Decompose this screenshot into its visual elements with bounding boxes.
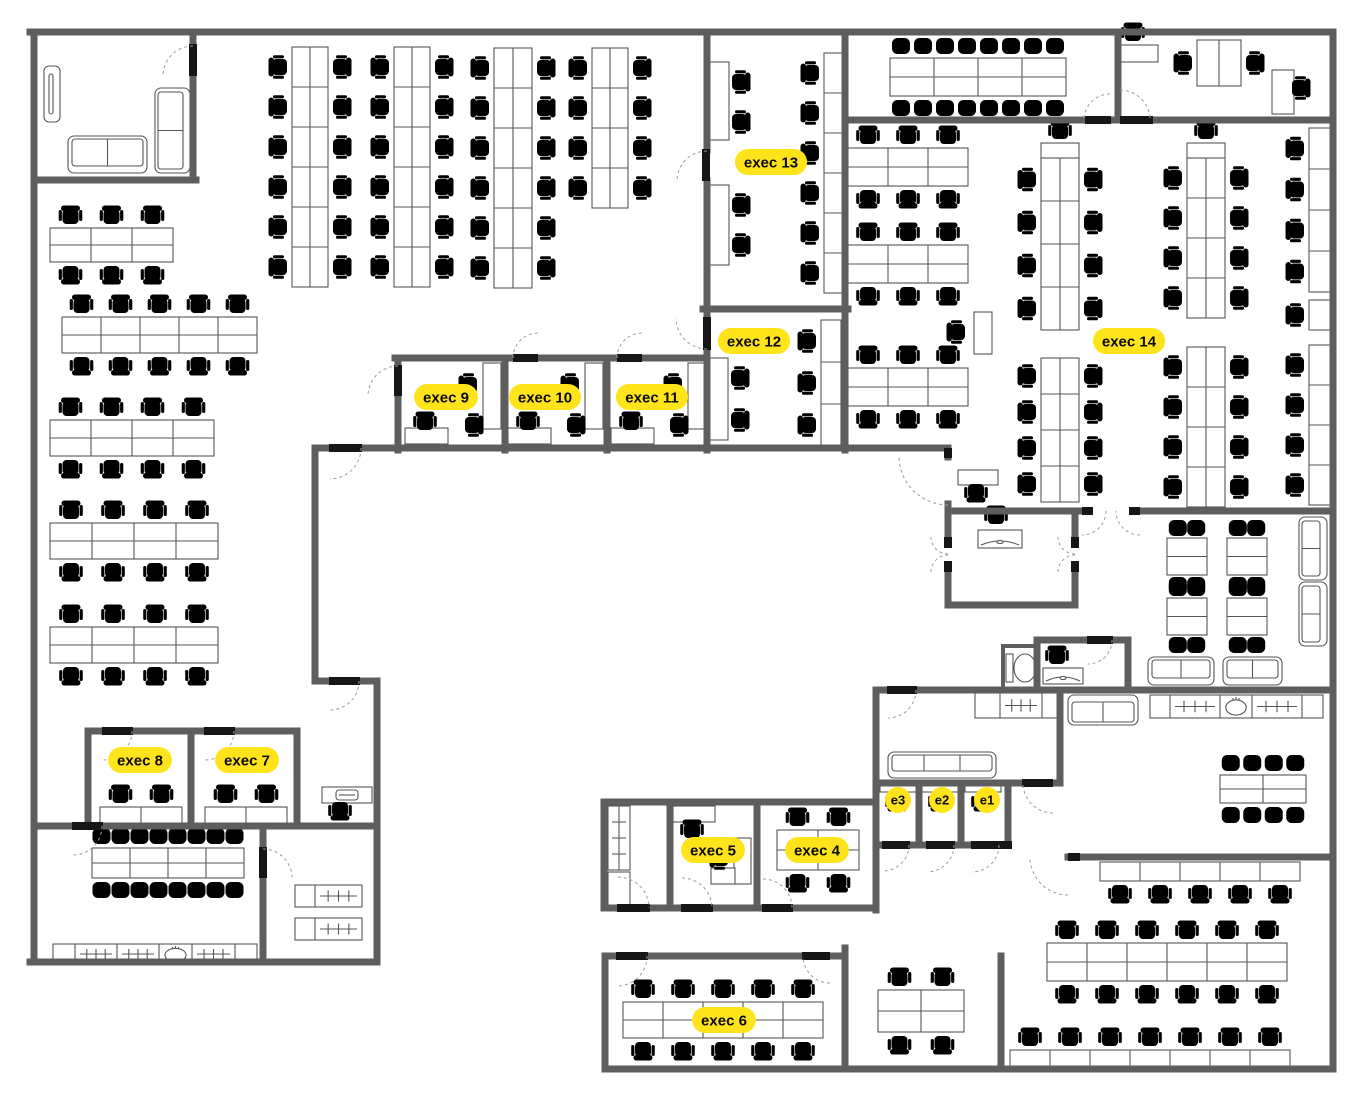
office-chair <box>59 605 83 624</box>
office-chair <box>1175 985 1199 1004</box>
office-chair <box>936 287 960 306</box>
door-swing-arc <box>1023 783 1053 813</box>
door-swing-arc <box>888 690 916 718</box>
door-jamb <box>513 354 538 362</box>
door-swing-arc <box>263 849 292 878</box>
office-chair <box>1230 355 1249 379</box>
wall-layer <box>30 32 1333 1069</box>
office-chair <box>1286 303 1305 327</box>
office-chair <box>936 190 960 209</box>
office-chair <box>1218 1028 1242 1047</box>
office-chair <box>1188 885 1212 904</box>
room-label-exec-12[interactable]: exec 12 <box>718 328 790 354</box>
office-chair <box>537 256 556 280</box>
office-chair <box>936 346 960 365</box>
office-chair <box>143 563 167 582</box>
office-chair <box>1055 921 1079 940</box>
office-chair <box>100 206 124 225</box>
room-label-exec-10[interactable]: exec 10 <box>509 384 581 410</box>
office-chair <box>371 255 390 279</box>
office-chair <box>59 266 83 285</box>
office-chair <box>1108 885 1132 904</box>
office-chair <box>827 808 851 827</box>
office-chair <box>1135 921 1159 940</box>
stool-chair <box>1229 637 1247 653</box>
office-chair <box>413 412 437 431</box>
office-chair <box>141 398 165 417</box>
office-chair <box>516 412 540 431</box>
office-chair <box>1230 435 1249 459</box>
office-chair <box>537 176 556 200</box>
door-swing-arc <box>330 681 359 710</box>
office-chair <box>148 357 172 376</box>
office-chair <box>1084 364 1103 388</box>
office-chair <box>101 667 125 686</box>
door-jamb <box>189 44 197 76</box>
room-label-exec-4[interactable]: exec 4 <box>785 837 849 863</box>
office-chair <box>732 233 751 257</box>
door-jamb <box>703 317 711 350</box>
door-jamb <box>617 904 650 912</box>
office-chair <box>633 136 652 160</box>
office-chair <box>896 287 920 306</box>
office-chair <box>333 95 352 119</box>
office-chair <box>931 968 955 987</box>
office-chair <box>101 563 125 582</box>
stool-chair <box>1046 38 1064 54</box>
stool-chair <box>226 882 244 898</box>
desk <box>711 868 735 884</box>
door-jamb <box>926 841 955 849</box>
office-chair <box>567 413 586 437</box>
office-chair <box>569 136 588 160</box>
office-chair <box>143 667 167 686</box>
desk <box>585 363 603 429</box>
room-label-e2[interactable]: e2 <box>929 787 955 813</box>
desk-bank <box>1100 862 1300 881</box>
office-chair <box>333 255 352 279</box>
office-chair <box>731 366 750 390</box>
stool-chair <box>914 38 932 54</box>
door-jamb <box>1068 853 1080 861</box>
desk-bank <box>1010 1050 1290 1068</box>
stool-chair <box>1187 520 1205 536</box>
office-chair <box>269 255 288 279</box>
stool-chair <box>93 828 111 844</box>
office-chair <box>1268 885 1292 904</box>
stool-chair <box>936 38 954 54</box>
office-chair <box>1228 885 1252 904</box>
office-chair <box>931 1036 955 1055</box>
office-chair <box>109 357 133 376</box>
sink <box>1226 700 1246 715</box>
office-chair <box>471 56 490 80</box>
office-chair <box>1286 433 1305 457</box>
door-jamb <box>702 149 710 181</box>
office-chair <box>1018 400 1037 424</box>
office-chair <box>791 1042 815 1061</box>
office-chair <box>371 55 390 79</box>
office-chair <box>100 266 124 285</box>
desk-end-cap <box>1187 143 1225 158</box>
room-label-text: exec 4 <box>794 842 841 859</box>
door-jamb <box>1000 841 1012 849</box>
office-chair <box>471 216 490 240</box>
stool-chair <box>980 100 998 116</box>
stool-chair <box>112 828 130 844</box>
office-chair <box>185 563 209 582</box>
room-label-exec-5[interactable]: exec 5 <box>681 837 745 863</box>
office-chair <box>569 56 588 80</box>
office-chair <box>143 605 167 624</box>
office-chair <box>537 136 556 160</box>
office-chair <box>371 135 390 159</box>
stool-chair <box>131 828 149 844</box>
office-chair <box>1164 395 1183 419</box>
office-chair <box>1018 364 1037 388</box>
office-chair <box>59 206 83 225</box>
door-jamb <box>1071 561 1079 572</box>
door-swing-arc <box>1120 90 1150 120</box>
office-chair <box>856 223 880 242</box>
office-chair <box>1178 1028 1202 1047</box>
door-jamb <box>882 841 910 849</box>
stool-chair <box>980 38 998 54</box>
office-chair <box>109 785 133 804</box>
door-jamb <box>72 822 103 830</box>
office-chair <box>269 95 288 119</box>
stool-chair <box>892 100 910 116</box>
door-swing-arc <box>330 448 361 479</box>
office-chair <box>1055 985 1079 1004</box>
door-jamb <box>616 952 648 960</box>
door-jamb <box>887 686 917 694</box>
stool-chair <box>150 828 168 844</box>
office-chair <box>896 223 920 242</box>
desk <box>508 428 551 444</box>
office-chair <box>1084 472 1103 496</box>
office-chair <box>798 413 817 437</box>
office-chair <box>1286 260 1305 284</box>
office-chair <box>109 295 133 314</box>
floor-plan-svg: exec 13exec 12exec 9exec 10exec 11exec 1… <box>0 0 1366 1113</box>
office-chair <box>1292 76 1311 100</box>
office-chair <box>801 261 820 285</box>
stool-chair <box>1169 580 1187 596</box>
office-chair <box>435 95 454 119</box>
office-chair <box>1164 475 1183 499</box>
office-chair <box>1175 921 1199 940</box>
floor-plan-canvas: exec 13exec 12exec 9exec 10exec 11exec 1… <box>0 0 1366 1113</box>
office-chair <box>70 295 94 314</box>
stool-chair <box>1265 755 1283 771</box>
office-chair <box>896 126 920 145</box>
office-chair <box>786 808 810 827</box>
office-chair <box>936 410 960 429</box>
office-chair <box>631 1042 655 1061</box>
office-chair <box>269 175 288 199</box>
office-chair <box>801 61 820 85</box>
office-chair <box>185 605 209 624</box>
office-chair <box>1230 246 1249 270</box>
office-chair <box>732 110 751 134</box>
stool-chair <box>112 882 130 898</box>
office-chair <box>1084 254 1103 278</box>
office-chair <box>465 413 484 437</box>
office-chair <box>100 398 124 417</box>
office-chair <box>1164 435 1183 459</box>
office-chair <box>435 255 454 279</box>
office-chair <box>182 460 206 479</box>
office-chair <box>1095 921 1119 940</box>
office-chair <box>1018 436 1037 460</box>
office-chair <box>1018 1028 1042 1047</box>
office-chair <box>1286 219 1305 243</box>
desk-bank <box>1309 300 1331 330</box>
room-label-text: exec 7 <box>224 752 270 769</box>
office-chair <box>1098 1028 1122 1047</box>
office-chair <box>1255 921 1279 940</box>
office-chair <box>1230 286 1249 310</box>
room-label-text: exec 11 <box>625 389 678 406</box>
desk <box>1272 70 1294 114</box>
office-chair <box>1045 646 1069 665</box>
door-jamb <box>762 904 793 912</box>
office-chair <box>888 968 912 987</box>
office-chair <box>1018 297 1037 321</box>
office-chair <box>1084 168 1103 192</box>
office-chair <box>371 175 390 199</box>
room-label-exec-9[interactable]: exec 9 <box>414 384 478 410</box>
room-label-exec-6[interactable]: exec 6 <box>692 1007 756 1033</box>
office-chair <box>537 216 556 240</box>
office-chair <box>1148 885 1172 904</box>
door-jamb <box>102 727 133 735</box>
stool-chair <box>1222 755 1240 771</box>
office-chair <box>1286 393 1305 417</box>
stool-chair <box>169 828 187 844</box>
office-chair <box>856 346 880 365</box>
toilet-bowl <box>1014 654 1036 682</box>
office-chair <box>70 357 94 376</box>
desk <box>688 363 706 429</box>
office-chair <box>333 215 352 239</box>
stool-chair <box>1187 580 1205 596</box>
stool-chair <box>892 38 910 54</box>
room-label-exec-13[interactable]: exec 13 <box>735 149 807 175</box>
office-chair <box>801 181 820 205</box>
room-label-exec-14[interactable]: exec 14 <box>1093 328 1165 354</box>
office-chair <box>732 193 751 217</box>
office-chair <box>269 55 288 79</box>
reception-desk <box>978 530 1022 548</box>
stool-chair <box>226 828 244 844</box>
room-label-text: exec 13 <box>744 154 798 171</box>
door-jamb <box>1082 507 1093 515</box>
office-chair <box>1018 472 1037 496</box>
office-chair <box>798 371 817 395</box>
desk <box>708 358 728 440</box>
office-chair <box>185 501 209 520</box>
stool-chair <box>1229 580 1247 596</box>
desk-end-cap <box>1041 143 1079 158</box>
office-chair <box>1230 475 1249 499</box>
desk <box>709 62 729 140</box>
desk <box>483 363 501 429</box>
office-chair <box>471 176 490 200</box>
door-swing-arc <box>368 366 398 396</box>
room-label-text: exec 12 <box>727 333 781 350</box>
office-chair <box>936 223 960 242</box>
office-chair <box>711 980 735 999</box>
room-label-text: e3 <box>891 793 905 808</box>
office-chair <box>1255 985 1279 1004</box>
desk <box>611 428 654 444</box>
room-label-e1[interactable]: e1 <box>974 787 1000 813</box>
room-label-text: exec 14 <box>1102 333 1157 350</box>
office-chair <box>631 980 655 999</box>
office-chair <box>141 266 165 285</box>
room-label-exec-11[interactable]: exec 11 <box>616 384 688 410</box>
door-jamb <box>944 561 952 572</box>
door-jamb <box>204 727 235 735</box>
office-chair <box>569 176 588 200</box>
office-chair <box>226 295 250 314</box>
stool-chair <box>188 882 206 898</box>
office-chair <box>1138 1028 1162 1047</box>
office-chair <box>333 55 352 79</box>
office-chair <box>856 126 880 145</box>
tv-panel <box>49 74 53 114</box>
office-chair <box>269 135 288 159</box>
office-chair <box>141 206 165 225</box>
room-label-text: e1 <box>980 793 994 808</box>
stool-chair <box>131 882 149 898</box>
office-chair <box>751 980 775 999</box>
desk-bank <box>821 320 841 446</box>
office-chair <box>1230 206 1249 230</box>
stool-chair <box>1247 637 1265 653</box>
office-chair <box>101 605 125 624</box>
stool-chair <box>914 100 932 116</box>
office-chair <box>1084 400 1103 424</box>
office-chair <box>1286 137 1305 161</box>
room-label-text: exec 6 <box>701 1012 747 1029</box>
office-chair <box>1286 473 1305 497</box>
office-chair <box>333 175 352 199</box>
stool-chair <box>1169 637 1187 653</box>
stool-chair <box>1229 520 1247 536</box>
office-chair <box>435 55 454 79</box>
office-chair <box>798 329 817 353</box>
office-chair <box>182 398 206 417</box>
room-label-e3[interactable]: e3 <box>885 787 911 813</box>
office-chair <box>187 357 211 376</box>
office-chair <box>371 215 390 239</box>
door-jamb <box>1120 116 1153 124</box>
office-chair <box>269 215 288 239</box>
office-chair <box>471 256 490 280</box>
office-chair <box>471 96 490 120</box>
stool-chair <box>1247 520 1265 536</box>
stool-chair <box>207 882 225 898</box>
office-chair <box>1164 286 1183 310</box>
office-chair <box>856 190 880 209</box>
office-chair <box>333 135 352 159</box>
office-chair <box>670 413 689 437</box>
door-jamb <box>329 444 362 452</box>
stool-chair <box>1222 807 1240 823</box>
office-chair <box>888 1036 912 1055</box>
office-chair <box>801 221 820 245</box>
door-jamb <box>394 365 402 396</box>
office-chair <box>101 501 125 520</box>
room-label-text: exec 8 <box>117 752 163 769</box>
office-chair <box>214 785 238 804</box>
office-chair <box>732 70 751 94</box>
office-chair <box>896 346 920 365</box>
office-chair <box>1084 436 1103 460</box>
office-chair <box>751 1042 775 1061</box>
office-chair <box>1095 985 1119 1004</box>
office-chair <box>856 410 880 429</box>
door-jamb <box>802 952 830 960</box>
office-chair <box>671 980 695 999</box>
office-chair <box>1058 1028 1082 1047</box>
room-label-exec-8[interactable]: exec 8 <box>108 747 172 773</box>
office-chair <box>537 96 556 120</box>
room-label-exec-7[interactable]: exec 7 <box>215 747 279 773</box>
office-chair <box>569 96 588 120</box>
office-chair <box>1246 51 1265 75</box>
office-chair <box>947 320 966 344</box>
office-chair <box>435 175 454 199</box>
door-jamb <box>1022 779 1053 787</box>
desk <box>405 428 448 444</box>
office-chair <box>150 785 174 804</box>
office-chair <box>1018 254 1037 278</box>
reception-bowl <box>1060 676 1066 679</box>
office-chair <box>328 802 352 821</box>
office-chair <box>1018 168 1037 192</box>
room-labels-layer: exec 13exec 12exec 9exec 10exec 11exec 1… <box>108 149 1165 1033</box>
stool-chair <box>1243 755 1261 771</box>
desk <box>1120 45 1158 62</box>
office-chair <box>185 667 209 686</box>
office-chair <box>1164 355 1183 379</box>
stool-chair <box>1002 38 1020 54</box>
door-jamb <box>1087 636 1113 644</box>
toilet-tank <box>1006 654 1013 682</box>
office-chair <box>1286 353 1305 377</box>
desk <box>974 312 992 354</box>
office-chair <box>711 1042 735 1061</box>
door-swing-arc <box>1030 857 1068 895</box>
office-chair <box>1286 178 1305 202</box>
office-chair <box>731 408 750 432</box>
stool-chair <box>1024 100 1042 116</box>
office-chair <box>896 410 920 429</box>
desk <box>709 185 729 265</box>
door-swing-arc <box>676 318 707 349</box>
office-chair <box>964 484 988 503</box>
door-jamb <box>1071 537 1079 548</box>
office-chair <box>1164 206 1183 230</box>
office-chair <box>59 398 83 417</box>
office-chair <box>148 295 172 314</box>
office-chair <box>1174 51 1193 75</box>
office-chair <box>1215 921 1239 940</box>
